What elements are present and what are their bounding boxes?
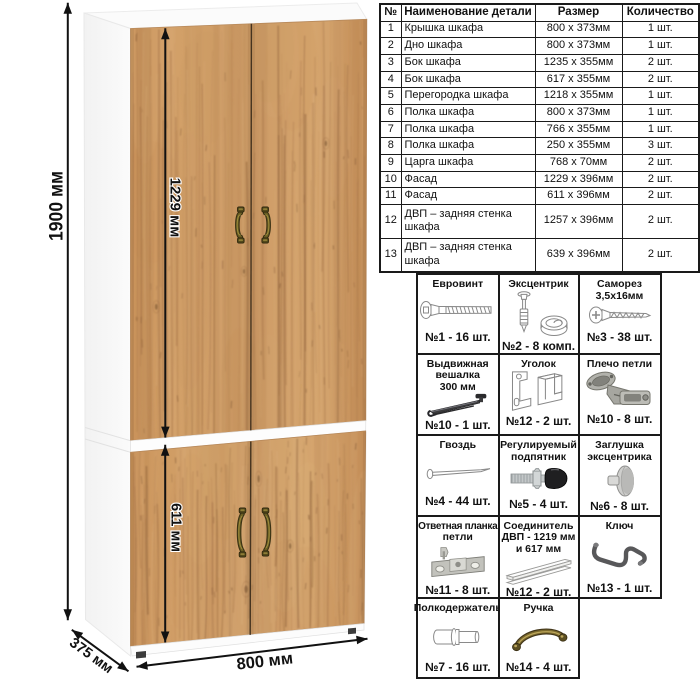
svg-text:611 мм: 611 мм <box>168 503 184 552</box>
svg-text:1229 мм: 1229 мм <box>166 178 183 238</box>
svg-text:1900 мм: 1900 мм <box>47 171 68 241</box>
